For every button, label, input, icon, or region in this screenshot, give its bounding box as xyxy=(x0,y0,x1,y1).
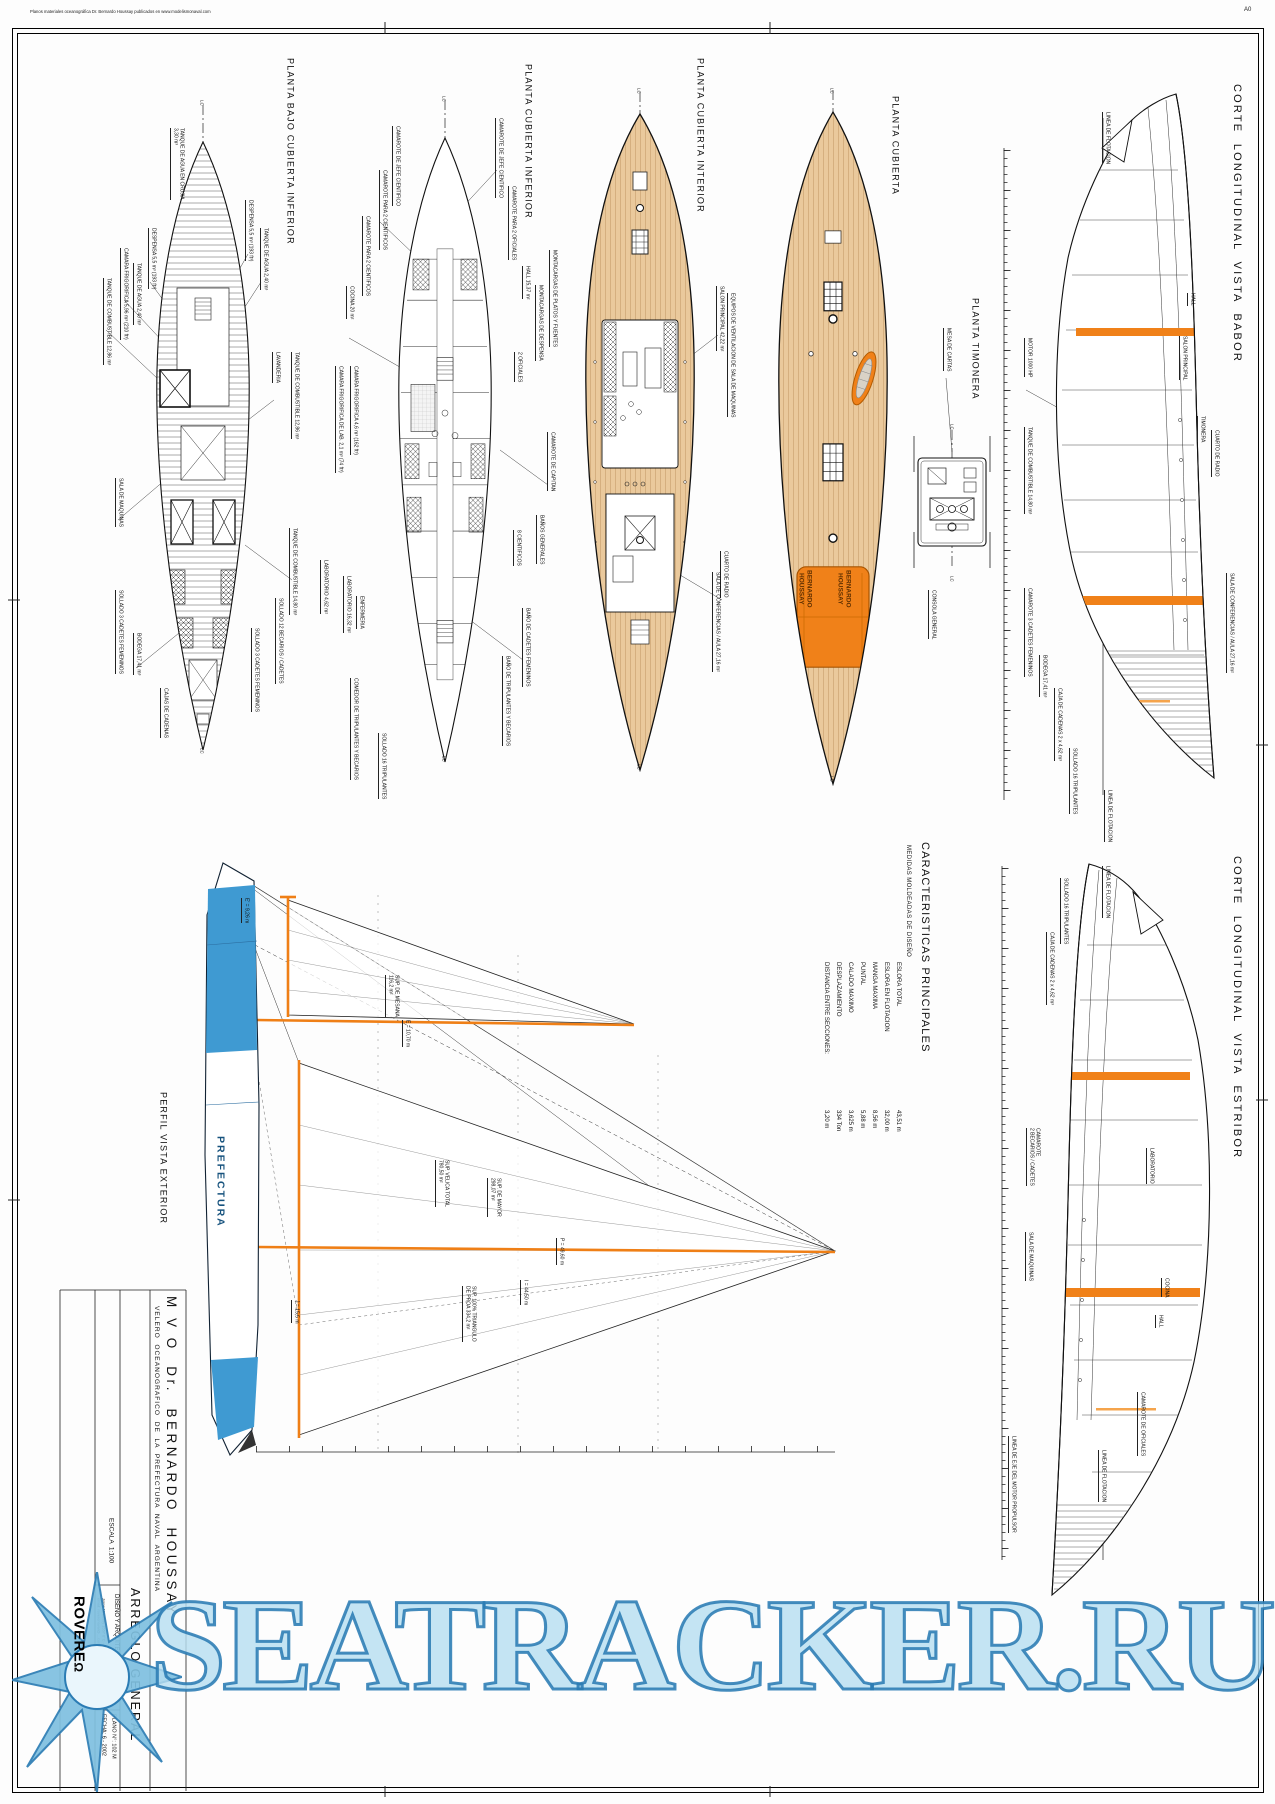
plan-cubierta-inferior-label: COCINA 20 m² xyxy=(346,286,353,319)
characteristics-item-label: ESLORA TOTAL xyxy=(894,962,901,1006)
plan-bajo-cubierta-inferior-label: DESPENSA 5,5 m³ (193 ft³) xyxy=(148,228,155,289)
plan-cubierta-inferior-label: CAMAROTE DE JEFE CIENTIFICO xyxy=(392,126,399,206)
corte-babor-label: TIMONERA xyxy=(1197,416,1204,442)
watermark-text: SEATRACKER.RU xyxy=(150,1568,1272,1721)
drawing-title-label: CORTE LONGITUDINAL VISTA ESTRIBOR xyxy=(1230,856,1243,1159)
perfil-exterior-label: E' = 9,26 m xyxy=(241,898,248,923)
drawing-title-label: PLANTA CUBIERTA INFERIOR xyxy=(523,64,534,219)
plan-bajo-cubierta-inferior-label: TANQUE DE AGUA 2,40 m³ xyxy=(133,263,140,325)
corte-babor-label: SOLLADO 16 TRIPULANTES xyxy=(1069,748,1076,814)
credit-note: Planos materiales oceanográfica Dr. Bern… xyxy=(30,9,211,14)
plan-cubierta-interior-drawing xyxy=(573,112,707,772)
plan-cubierta-label: LC xyxy=(829,776,834,782)
plan-cubierta-interior-label: SALA DE CONFERENCIAS / AULA 27,16 m² xyxy=(712,572,719,672)
plan-cubierta-inferior-label: CAMAROTE PARA 2 OFICIALES xyxy=(508,186,515,260)
plan-timonera-label: CONSOLA GENERAL xyxy=(928,590,935,639)
characteristics-item-label: ESLORA EN FLOTACION xyxy=(882,962,889,1032)
plan-bajo-cubierta-inferior-label: SALA DE MAQUINAS xyxy=(115,478,122,527)
corte-babor-label: SALON PRINCIPAL xyxy=(1179,336,1186,380)
characteristics-item-value: 43,51 m xyxy=(894,1110,901,1132)
corte-babor-label: LINEA DE FLOTACION xyxy=(1102,112,1109,164)
plan-cubierta-inferior-label: MONTACARGAS DE PLATOS Y FUENTES xyxy=(549,250,556,347)
plan-cubierta-inferior-label: SOLLADO 16 TRIPULANTES xyxy=(378,733,385,799)
drawing-title-label: CORTE LONGITUDINAL VISTA BABOR xyxy=(1230,84,1243,363)
perfil-exterior-label: SUP. 100% TRIANGULO DE PROA 334,2 m² xyxy=(462,1286,475,1342)
corte-estribor-label: HALL xyxy=(1155,1315,1162,1328)
plan-bajo-cubierta-inferior-label: TANQUE DE COMBUSTIBLE 14,80 m³ xyxy=(289,528,296,615)
plan-cubierta-inferior-drawing xyxy=(383,136,507,764)
perfil-exterior-label: SUP. VELICA TOTAL 780,50 m² xyxy=(435,1160,448,1207)
plan-cubierta-inferior-label: BAÑO DE TRIPULANTES Y BECARIOS xyxy=(502,656,509,746)
corte-babor-label: BODEGA 17,41 m³ xyxy=(1039,655,1046,697)
plan-cubierta-inferior-label: LC xyxy=(441,96,446,102)
corte-babor-label: HALL xyxy=(1187,293,1194,306)
plan-cubierta-label: LC xyxy=(829,88,834,94)
corte-estribor-label: SOLLADO 16 TRIPULANTES xyxy=(1060,878,1067,944)
corte-babor-label: CAMAROTE 3 CADETES FEMENINOS xyxy=(1024,588,1031,677)
plan-cubierta-label: BERNARDO HOUSSAY xyxy=(797,570,812,608)
plan-cubierta-inferior-label: CAMAROTE PARA 2 CIENTIFICOS xyxy=(362,216,369,296)
plan-cubierta-inferior-label: CAMAROTE DE JEFE CIENTIFICO xyxy=(495,118,502,198)
plan-bajo-cubierta-inferior-label: LC xyxy=(199,748,204,754)
plan-bajo-cubierta-inferior-label: LC xyxy=(199,100,204,106)
characteristics-item-label: DISTANCIA ENTRE SECCIONES: xyxy=(822,962,829,1054)
perfil-exterior-label: SUP. DE MAYOR 298,07 m² xyxy=(487,1178,500,1217)
perfil-exterior-label: PREFECTURA xyxy=(214,1136,226,1228)
drawing-title-label: PERFIL VISTA EXTERIOR xyxy=(158,1092,169,1224)
title-block-label: VELERO OCEANOGRAFICO DE LA PREFECTURA NA… xyxy=(152,1306,160,1592)
plan-cubierta-inferior-label: ENFERMERIA xyxy=(356,596,363,629)
plan-cubierta-inferior-label: BAÑO DE CADETES FEMENINOS xyxy=(522,608,529,687)
plan-bajo-cubierta-inferior-label: SOLLADO 12 BECARIOS / CADETES xyxy=(275,598,282,684)
plan-bajo-cubierta-inferior-label: SOLLADO 3 CADETES FEMENINOS xyxy=(251,628,258,712)
corte-estribor-label: CAJA DE CADENAS 2 x 4,62 m³ xyxy=(1046,932,1053,1005)
characteristics-subtitle: MEDIDAS MOLDEADAS DE DISEÑO xyxy=(904,845,911,957)
characteristics-item-value: 334 Ton xyxy=(834,1110,841,1131)
corte-babor-label: SALA DE CONFERENCIAS / AULA 27,16 m² xyxy=(1226,573,1233,673)
plan-bajo-cubierta-inferior-label: TANQUE DE AGUA EN CRUJIA 3,30 m³ xyxy=(170,128,183,200)
plan-cubierta-inferior-label: BAÑOS GENERALES xyxy=(536,515,543,564)
corte-babor-label: LINEA DE FLOTACION xyxy=(1104,790,1111,842)
plan-cubierta-inferior-label: LC xyxy=(441,756,446,762)
corte-estribor-label: LINEA DE FLOTACION xyxy=(1102,866,1109,918)
plan-cubierta-inferior-label: LABORATORIO 16,32 m² xyxy=(343,576,350,633)
perfil-exterior-label: SUP. DE MESANA 116,2 m² xyxy=(385,975,398,1017)
plan-timonera-label: LC xyxy=(949,576,954,582)
corte-babor-label: CUARTO DE RADIO xyxy=(1211,430,1218,477)
characteristics-item-value: 5,88 m xyxy=(858,1110,865,1128)
plan-cubierta-inferior-label: CAMARA FRIGORIFICA 4,6 m³ (162 ft³) xyxy=(350,366,357,455)
plan-timonera-label: MESA DE CARTAS xyxy=(943,328,950,371)
plan-cubierta-interior-label: CUARTO DE RADIO xyxy=(720,551,727,598)
perfil-exterior-label: P = 49,60 m xyxy=(556,1238,563,1265)
rovere-logo: ROVEREΩ xyxy=(70,1596,88,1672)
perfil-exterior-label: I = 44,50 m xyxy=(520,1280,527,1305)
characteristics-item-label: PUNTAL xyxy=(858,962,865,985)
plan-bajo-cubierta-inferior-label: TANQUE DE COMBUSTIBLE 12,86 m³ xyxy=(291,352,298,439)
plan-cubierta-interior-label: SALON PRINCIPAL 42,22 m² xyxy=(716,286,723,351)
corte-estribor-label: CAMAROTE DE OFICIALES xyxy=(1137,1392,1144,1456)
plan-cubierta-inferior-label: 8 CIENTIFICOS xyxy=(513,530,520,566)
corte-estribor-label: SALA DE MAQUINAS xyxy=(1025,1232,1032,1281)
perfil-exterior-label: J = 15,5 m xyxy=(291,1300,298,1323)
plan-bajo-cubierta-inferior-label: DESPENSA 5,5 m³ (193 ft³) xyxy=(245,200,252,261)
characteristics-item-label: CALADO MAXIMO xyxy=(846,962,853,1013)
plan-cubierta-inferior-label: 2 OFICIALES xyxy=(514,352,521,382)
drawing-title-label: PLANTA TIMONERA xyxy=(970,298,981,400)
plan-timonera-label: LC xyxy=(949,424,954,430)
sheet-size-label: A0 xyxy=(1244,7,1251,13)
characteristics-title: CARACTERISTICAS PRINCIPALES xyxy=(918,842,931,1053)
characteristics-item-value: 3,625 m xyxy=(846,1110,853,1132)
plan-cubierta-inferior-label: HALL 15,37 m² xyxy=(522,266,529,299)
drawing-title-label: PLANTA CUBIERTA xyxy=(890,96,901,195)
drawing-title-label: PLANTA CUBIERTA INTERIOR xyxy=(695,58,706,213)
perfil-exterior-label: E = 10,70 m xyxy=(402,1020,409,1047)
plan-cubierta-drawing xyxy=(766,110,900,786)
plan-cubierta-label: BERNARDO HOUSSAY xyxy=(836,570,851,608)
title-block-label: ESCALA 1:100 xyxy=(107,1518,115,1563)
plan-bajo-cubierta-inferior-label: BODEGA 17,41 m³ xyxy=(133,633,140,675)
plan-timonera-drawing xyxy=(906,432,998,572)
characteristics-item-label: DESPLAZAMIENTO xyxy=(834,962,841,1017)
corte-estribor-label: LINEA DE FLOTACION xyxy=(1098,1450,1105,1502)
plan-cubierta-inferior-label: COMEDOR DE TRIPULANTES Y BECARIOS xyxy=(350,678,357,780)
plan-bajo-cubierta-inferior-label: SOLLADO 3 CADETES FEMENINOS xyxy=(115,590,122,674)
corte-babor-label: MOTOR 1000 HP xyxy=(1024,338,1031,377)
plan-bajo-cubierta-inferior-label: TANQUE DE COMBUSTIBLE 12,86 m³ xyxy=(103,278,110,365)
plan-bajo-cubierta-inferior-label: CAJAS DE CADENAS xyxy=(160,688,167,738)
corte-babor-label: CAJA DE CADENAS 2 x 4,62 m³ xyxy=(1054,688,1061,761)
characteristics-item-value: 3,20 m xyxy=(822,1110,829,1128)
characteristics-item-label: MANGA MAXIMA xyxy=(870,962,877,1009)
corte-babor-label: TANQUE DE COMBUSTIBLE 14,80 m³ xyxy=(1024,427,1031,514)
plan-cubierta-interior-label: LC xyxy=(636,88,641,94)
corte-estribor-label: LINEA DE EJE DEL MOTOR PROPULSOR xyxy=(1008,1436,1015,1533)
drawing-title-label: PLANTA BAJO CUBIERTA INFERIOR xyxy=(285,58,296,245)
plan-cubierta-inferior-label: CAMAROTE DE CAPITAN xyxy=(547,432,554,491)
plan-cubierta-inferior-label: CAMARA FRIGORIFICA DE LAB. 2,1 m³ (74 ft… xyxy=(335,366,342,473)
plan-bajo-cubierta-inferior-label: TANQUE DE AGUA 2,40 m³ xyxy=(260,228,267,290)
perfil-vista-exterior-drawing xyxy=(178,855,858,1475)
plan-bajo-cubierta-inferior-label: LAVANDERIA xyxy=(272,352,279,383)
plan-cubierta-interior-label: EQUIPOS DE VENTILACION DE SALA DE MAQUIN… xyxy=(727,293,734,417)
plan-cubierta-inferior-label: LABORATORIO 4,62 m² xyxy=(320,560,327,614)
plan-bajo-cubierta-inferior-label: CAMARA FRIGORIFICA 5,96 m³ (210 ft³) xyxy=(120,248,127,340)
characteristics-item-value: 32,00 m xyxy=(882,1110,889,1132)
plan-cubierta-interior-label: LC xyxy=(636,764,641,770)
corte-estribor-label: COCINA xyxy=(1161,1278,1168,1297)
plan-cubierta-inferior-label: MONTACARGAS DE DESPENSA xyxy=(535,285,542,361)
corte-estribor-label: LABORATORIO xyxy=(1146,1148,1153,1184)
plan-cubierta-inferior-label: CAMAROTE PARA 2 CIENTIFICOS xyxy=(379,170,386,250)
corte-estribor-label: CAMAROTE 2 BECARIOS / CADETES xyxy=(1026,1128,1039,1186)
characteristics-item-value: 8,56 m xyxy=(870,1110,877,1128)
drawing-sheet: Planos materiales oceanográfica Dr. Bern… xyxy=(0,0,1275,1804)
